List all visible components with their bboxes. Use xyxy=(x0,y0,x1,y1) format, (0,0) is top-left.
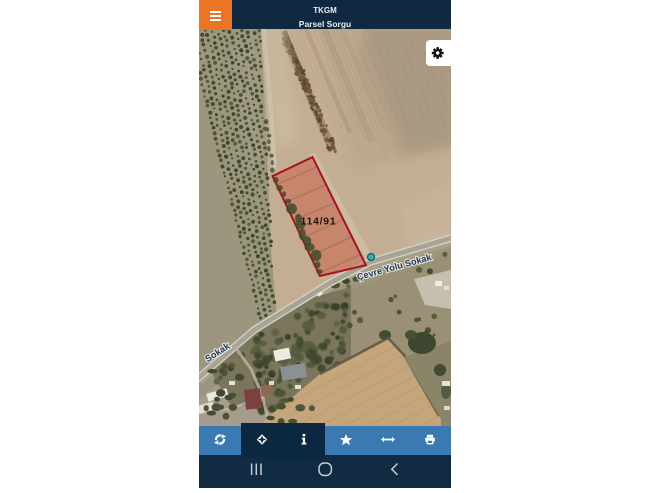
svg-text:114/91: 114/91 xyxy=(301,217,337,228)
